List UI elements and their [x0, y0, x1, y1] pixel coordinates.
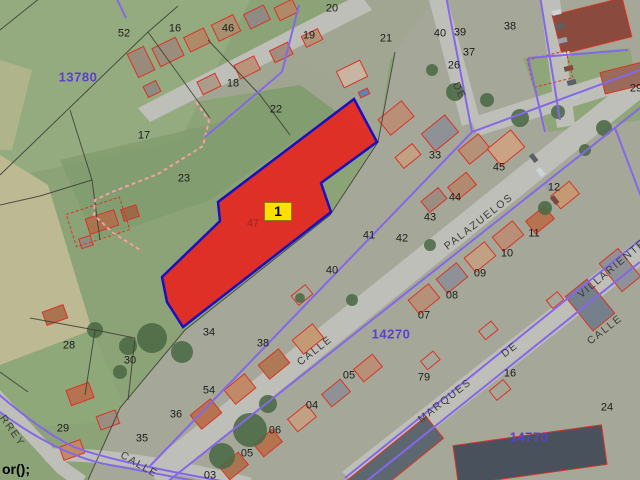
script-artifact-text: or();	[2, 461, 30, 477]
map-viewport[interactable]: 5216462019211822172340393837262933454443…	[0, 0, 640, 480]
aerial-basemap	[0, 0, 640, 480]
selected-parcel-badge[interactable]: 1	[264, 202, 292, 221]
